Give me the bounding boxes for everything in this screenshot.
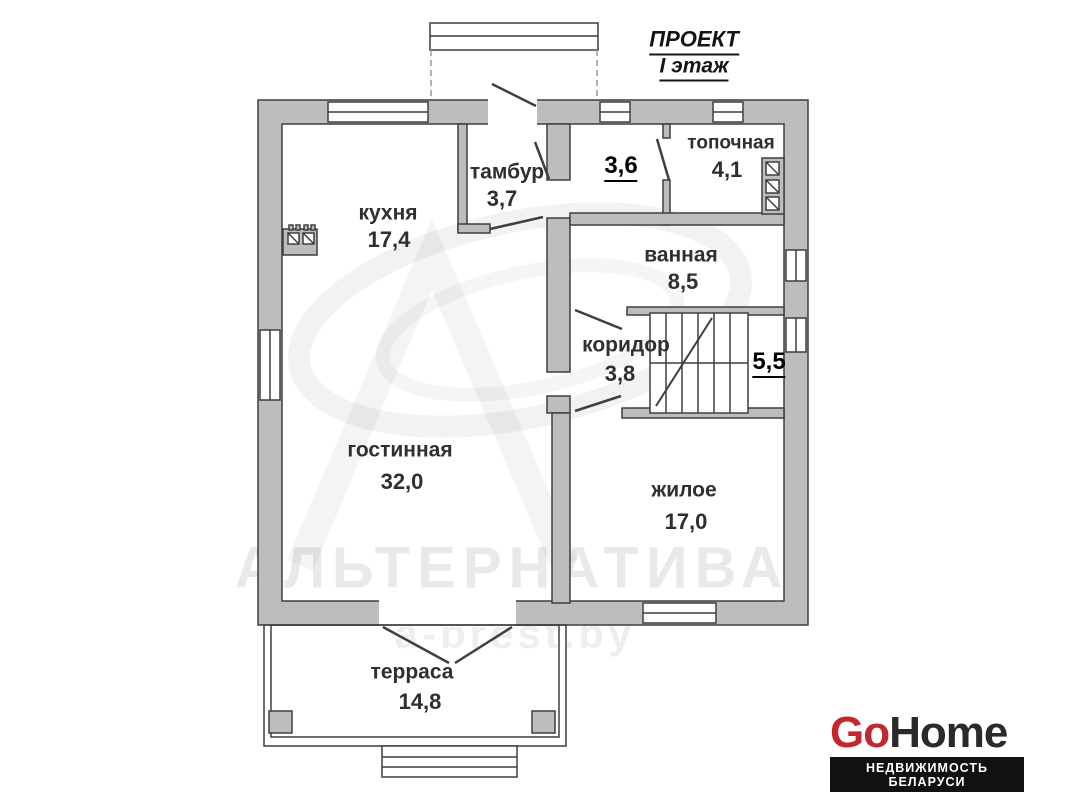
storage-window	[600, 102, 630, 122]
boiler-door-swing	[657, 139, 669, 180]
room-area-bedroom: 17,0	[665, 511, 708, 533]
room-area-bathroom: 8,5	[668, 271, 699, 293]
gohome-tagline: НЕДВИЖИМОСТЬ БЕЛАРУСИ	[830, 757, 1024, 792]
terrace-post-left	[269, 711, 292, 733]
entrance-porch	[430, 23, 598, 100]
room-area-living: 32,0	[381, 471, 424, 493]
floor-plan-drawing	[0, 0, 1068, 800]
room-area-terrace: 14,8	[399, 691, 442, 713]
corridor-door-swing	[575, 396, 621, 411]
kitchen-window	[328, 102, 428, 122]
boiler-window	[713, 102, 743, 122]
room-label-kitchen: кухня	[358, 203, 417, 224]
room-label-bedroom: жилое	[651, 480, 716, 501]
living-window	[260, 330, 280, 400]
room-area-kitchen: 17,4	[368, 229, 411, 251]
bathroom-window	[786, 250, 806, 281]
gohome-wordmark: GoHome	[830, 710, 1024, 756]
room-label-bathroom: ванная	[644, 245, 718, 266]
room-area-vestibule: 3,7	[487, 188, 518, 210]
room-label-vestibule: тамбур	[470, 162, 544, 183]
plan-title: ПРОЕКТ	[649, 27, 739, 56]
room-area-storage: 3,6	[604, 154, 637, 182]
terrace-door-swing-right	[455, 627, 512, 663]
room-label-boiler: топочная	[687, 134, 774, 153]
floor-plan-page: АЛЬТЕРНАТИВА a-brest.by	[0, 0, 1068, 800]
bathroom-door-swing	[575, 310, 622, 329]
stove-icon	[283, 225, 317, 255]
stairwell-window	[786, 318, 806, 352]
door-swings	[490, 84, 669, 411]
plan-subtitle: I этаж	[659, 55, 728, 82]
room-label-corridor: коридор	[582, 335, 670, 356]
terrace-steps	[382, 746, 517, 777]
terrace-post-right	[532, 711, 555, 733]
room-label-terrace: терраса	[371, 662, 454, 683]
staircase	[650, 313, 748, 413]
bedroom-window	[643, 603, 716, 623]
room-area-stairwell: 5,5	[752, 350, 785, 378]
gohome-logo-go: Go	[830, 708, 889, 757]
terrace-door-swing-left	[383, 627, 449, 663]
room-label-living: гостинная	[347, 440, 452, 461]
room-area-boiler: 4,1	[712, 159, 743, 181]
boiler-equipment-icon	[762, 158, 784, 214]
room-area-corridor: 3,8	[605, 363, 636, 385]
vestibule-door-swing	[490, 217, 543, 229]
gohome-logo: GoHome НЕДВИЖИМОСТЬ БЕЛАРУСИ	[830, 710, 1024, 792]
gohome-logo-home: Home	[889, 708, 1007, 757]
